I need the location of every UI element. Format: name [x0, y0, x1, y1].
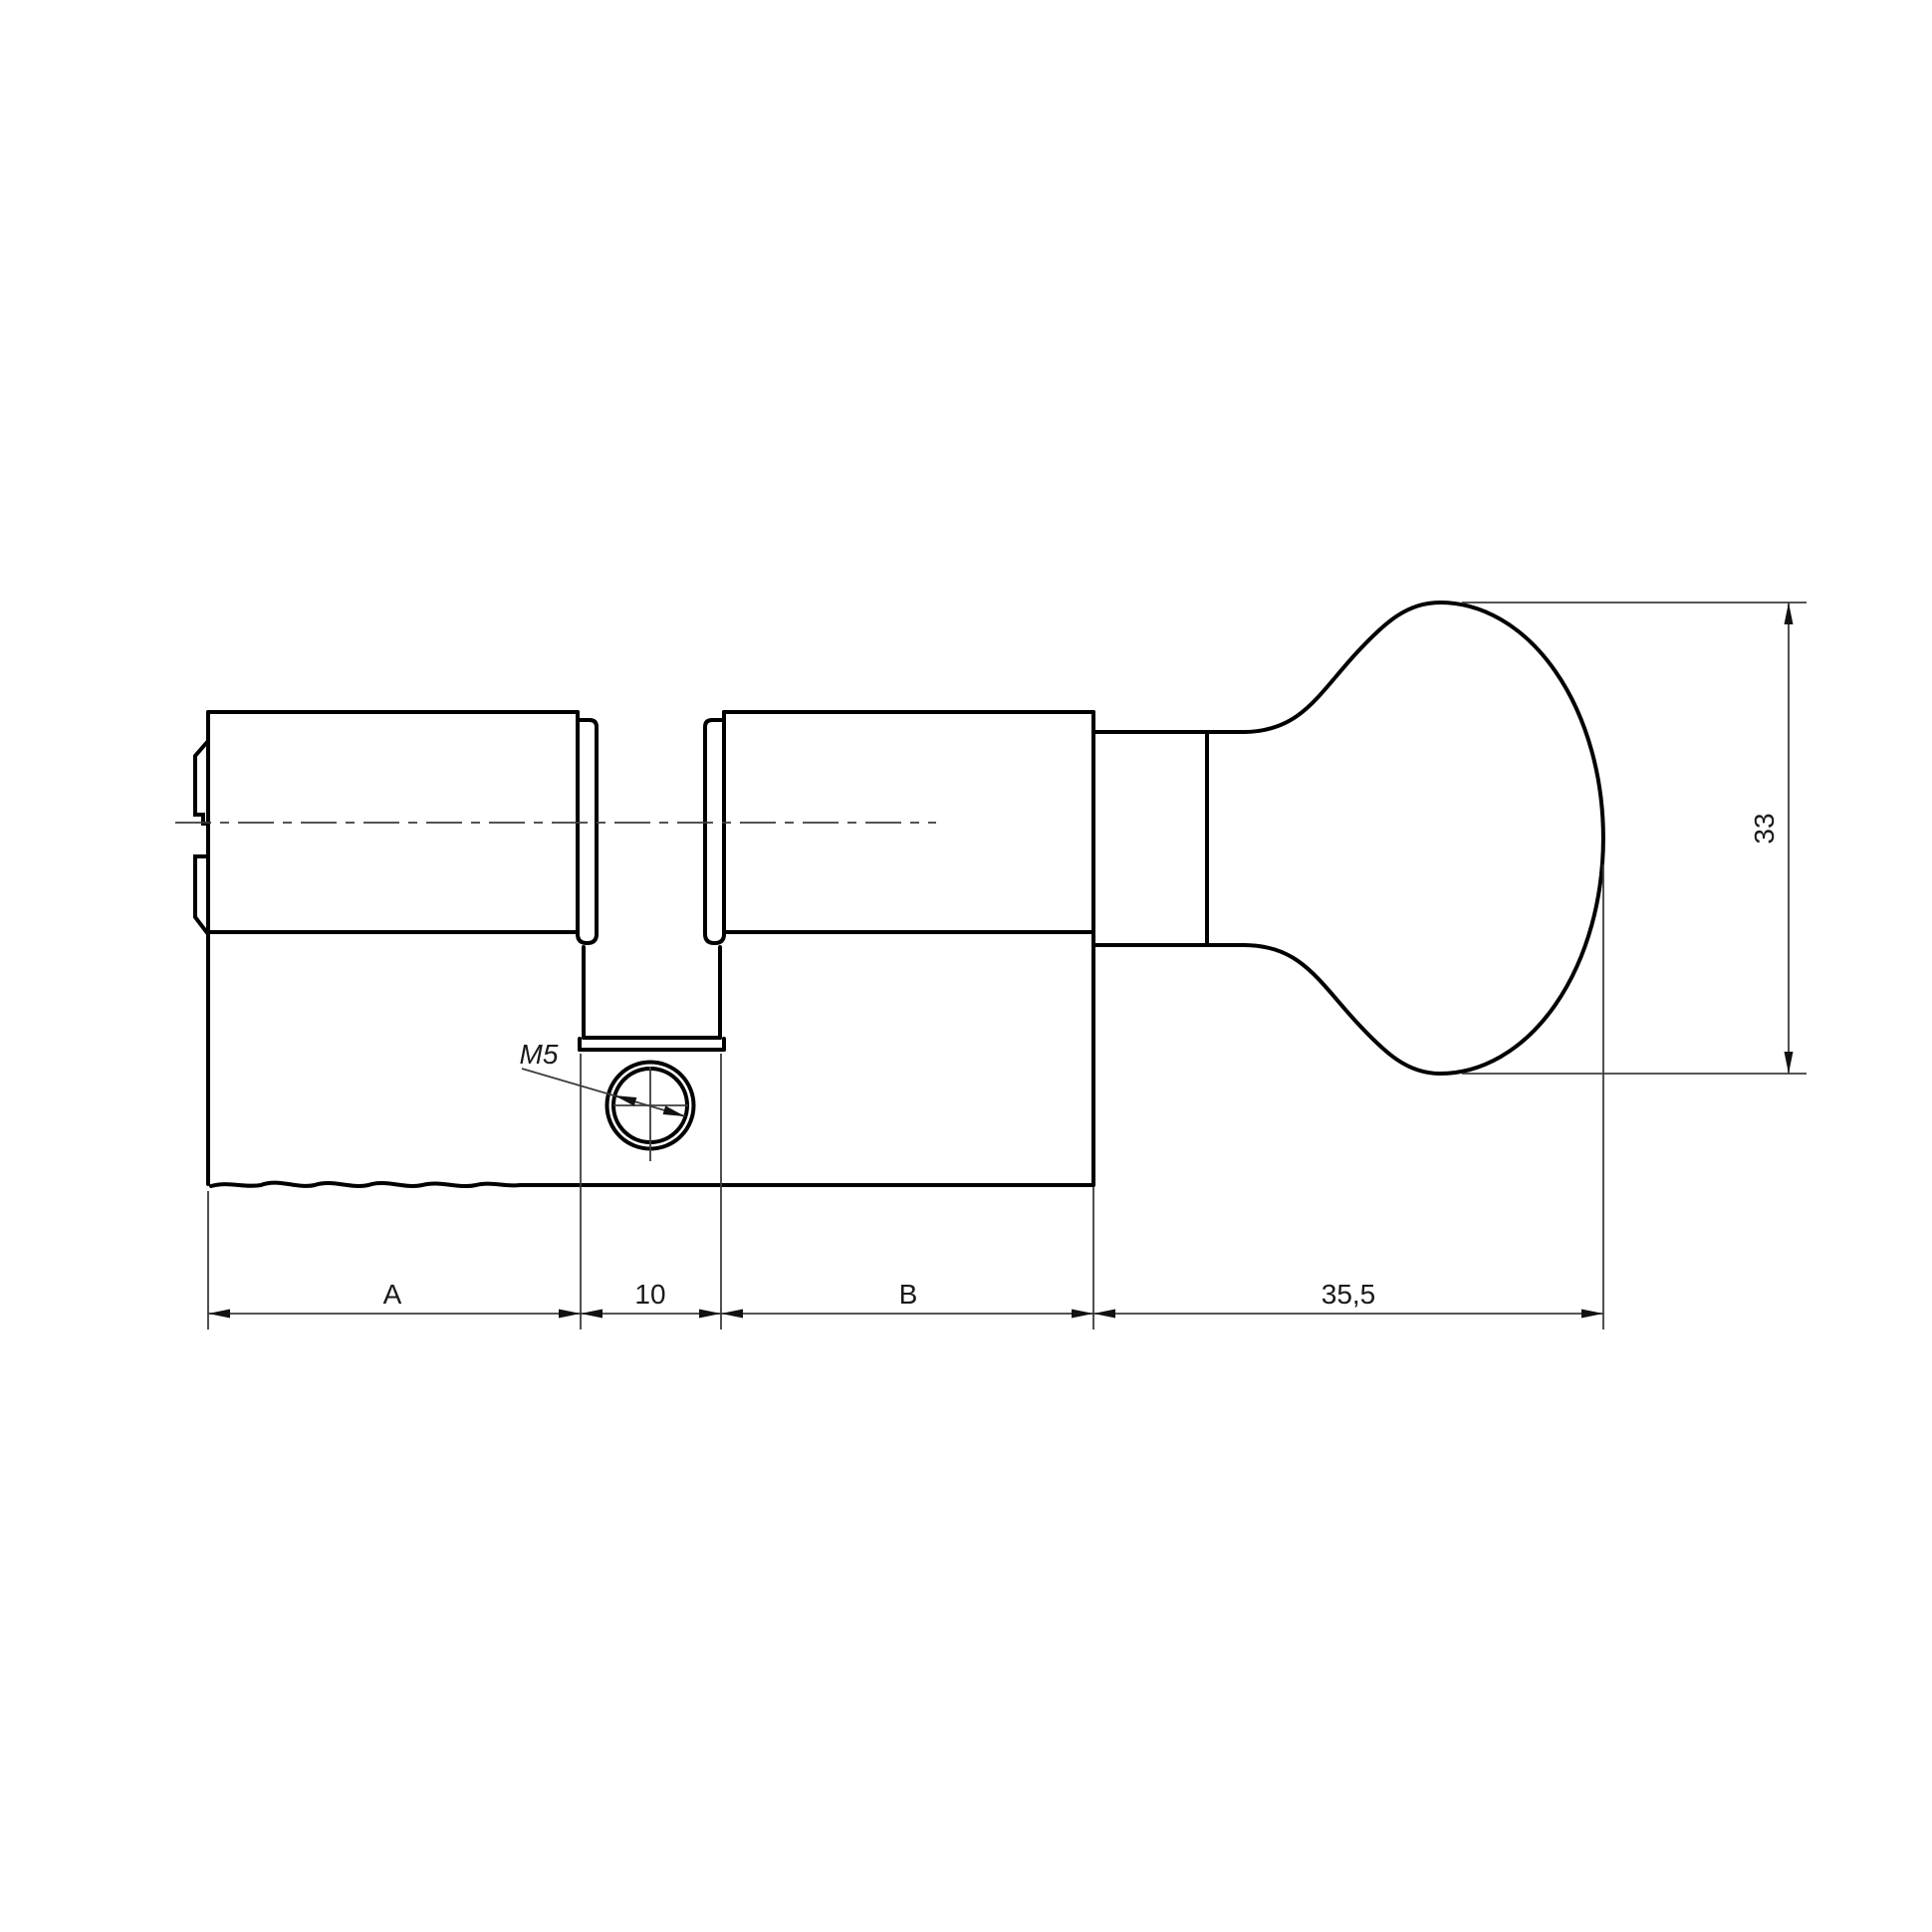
arrow-10-left [581, 1310, 603, 1319]
arrow-b-left [721, 1310, 743, 1319]
dim-label-b: B [899, 1279, 918, 1310]
arrow-a-left [208, 1310, 230, 1319]
flag-bottom-serrated-edge [211, 1183, 1093, 1186]
arrow-m5-right [663, 1105, 685, 1116]
arrow-33-top [1785, 603, 1794, 624]
arrow-355-right [1581, 1310, 1603, 1319]
thumbturn-knob-outline [1093, 603, 1603, 1074]
dim-label-33: 33 [1749, 813, 1780, 844]
thread-label-m5: M5 [520, 1039, 559, 1070]
dim-label-a: A [383, 1279, 402, 1310]
dim-label-10: 10 [634, 1279, 665, 1310]
dim-label-35-5: 35,5 [1322, 1279, 1376, 1310]
drawing-canvas: A 10 B 35,5 33 M5 [0, 0, 1932, 1932]
arrow-b-right [1072, 1310, 1093, 1319]
dimension-arrowheads [208, 603, 1794, 1319]
arrow-m5-left [614, 1095, 636, 1106]
arrow-33-bottom [1785, 1052, 1794, 1074]
cam-gap-right-tab [705, 712, 724, 943]
arrow-355-left [1093, 1310, 1115, 1319]
part-outlines [195, 603, 1603, 1186]
arrow-10-right [699, 1310, 721, 1319]
arrow-a-right [559, 1310, 581, 1319]
cam-gap-left-tab [578, 712, 597, 943]
m5-leader-line [522, 1069, 685, 1116]
dimension-labels: A 10 B 35,5 33 M5 [383, 813, 1780, 1310]
cylinder-technical-drawing: A 10 B 35,5 33 M5 [0, 0, 1932, 1932]
